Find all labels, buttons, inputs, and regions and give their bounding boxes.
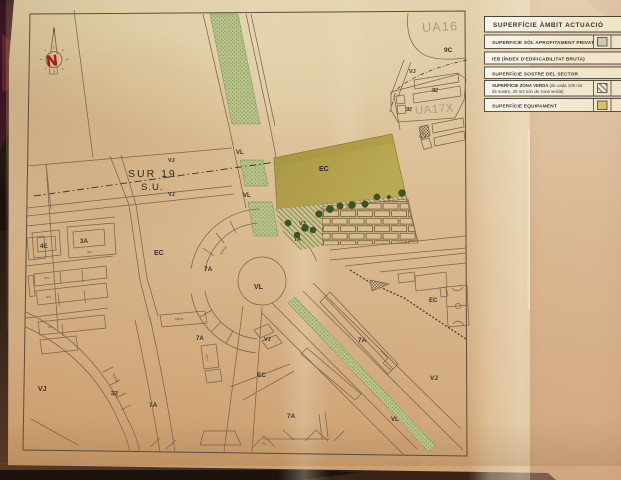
- svg-text:S.U.: S.U.: [141, 182, 163, 193]
- svg-text:VJ: VJ: [264, 337, 271, 343]
- svg-text:2E: 2E: [405, 105, 413, 112]
- svg-text:VJ: VJ: [168, 158, 175, 164]
- svg-text:7A: 7A: [294, 237, 301, 243]
- svg-text:7A: 7A: [204, 266, 213, 273]
- svg-text:4P3: 4P3: [87, 250, 92, 254]
- svg-text:EC: EC: [429, 298, 438, 304]
- svg-text:EC: EC: [154, 250, 164, 257]
- svg-text:VL: VL: [391, 417, 399, 423]
- svg-text:4E: 4E: [40, 243, 48, 250]
- svg-text:2E: 2E: [431, 86, 439, 93]
- svg-text:SUPERFÍCIE ÀMBIT ACTUACIÓ: SUPERFÍCIE ÀMBIT ACTUACIÓ: [493, 20, 604, 29]
- svg-text:VL: VL: [254, 284, 264, 291]
- svg-text:9C: 9C: [444, 47, 453, 54]
- svg-text:VJ: VJ: [409, 69, 416, 75]
- svg-text:VL: VL: [243, 193, 251, 199]
- svg-text:VJ: VJ: [168, 192, 175, 198]
- svg-text:4P3: 4P3: [44, 276, 49, 280]
- svg-text:4P3: 4P3: [46, 295, 51, 299]
- svg-text:3A: 3A: [80, 238, 88, 245]
- svg-text:7A: 7A: [196, 336, 204, 342]
- svg-text:SUPERFÍCIE ZONA VERDA (de cada: SUPERFÍCIE ZONA VERDA (de cada 100 m2: [492, 83, 583, 88]
- svg-text:2E: 2E: [111, 389, 119, 396]
- svg-text:VJ: VJ: [430, 375, 438, 382]
- svg-text:7A: 7A: [287, 413, 296, 420]
- svg-text:EC: EC: [257, 372, 266, 379]
- svg-text:UA16: UA16: [422, 19, 459, 35]
- svg-text:7A: 7A: [149, 402, 158, 409]
- svg-text:VJ: VJ: [299, 221, 306, 227]
- svg-text:SUR 19: SUR 19: [128, 168, 177, 180]
- svg-text:VJ: VJ: [38, 386, 47, 393]
- svg-text:VL: VL: [236, 150, 244, 156]
- svg-text:7A: 7A: [358, 337, 367, 344]
- svg-text:EC: EC: [319, 166, 329, 173]
- svg-text:SPA B: SPA B: [175, 317, 183, 321]
- svg-text:de sostre, 20 m2 són de zona v: de sostre, 20 m2 són de zona verda): [492, 89, 564, 94]
